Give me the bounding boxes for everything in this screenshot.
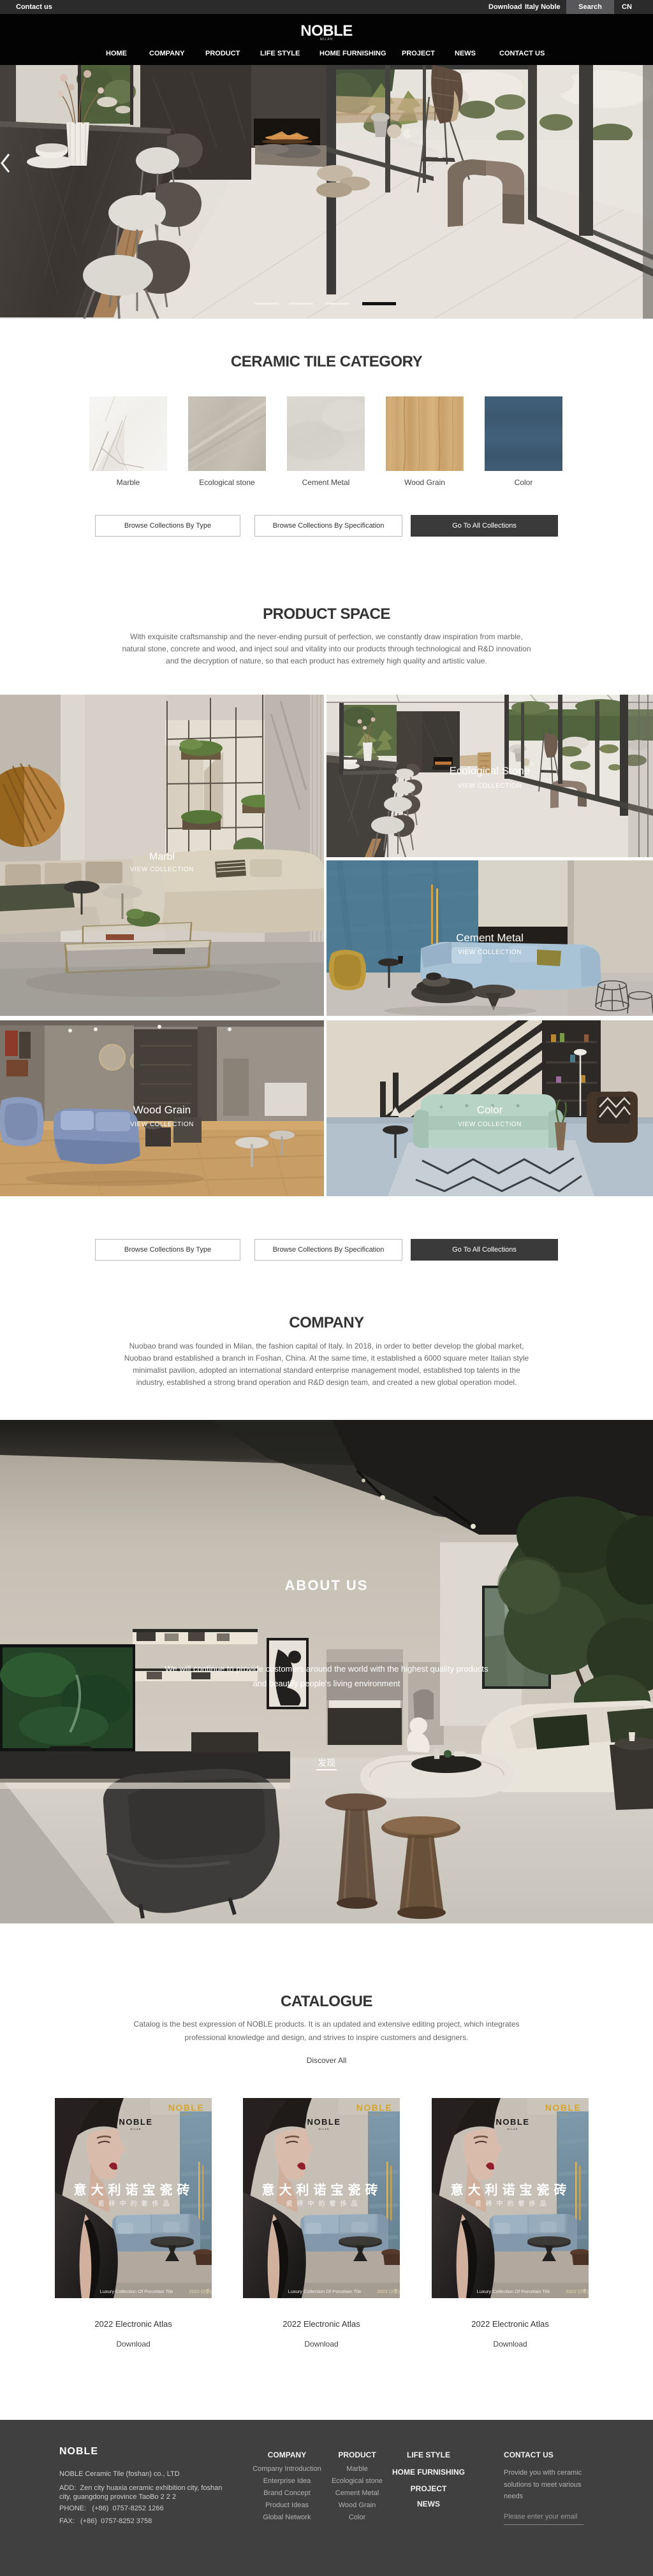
svg-text:MILAN: MILAN (319, 2128, 330, 2131)
svg-text:NOBLE: NOBLE (119, 2117, 153, 2127)
svg-text:意大利诺宝瓷砖: 意大利诺宝瓷砖 (451, 2182, 571, 2197)
svg-text:MILAN: MILAN (508, 2128, 518, 2131)
svg-text:意大利诺宝瓷砖: 意大利诺宝瓷砖 (74, 2182, 194, 2197)
svg-text:MILAN: MILAN (181, 2113, 192, 2116)
svg-text:NOBLE: NOBLE (545, 2102, 582, 2113)
svg-text:2022 (2季): 2022 (2季) (377, 2288, 400, 2294)
svg-text:Luxury Collection Of Porcelain: Luxury Collection Of Porcelain Tile (100, 2289, 173, 2294)
svg-text:NOBLE: NOBLE (496, 2117, 530, 2127)
svg-text:NOBLE: NOBLE (356, 2102, 393, 2113)
svg-text:瓷砖中的奢侈品: 瓷砖中的奢侈品 (98, 2199, 174, 2208)
svg-text:2022 (2季): 2022 (2季) (566, 2288, 589, 2294)
svg-text:瓷砖中的奢侈品: 瓷砖中的奢侈品 (475, 2199, 551, 2208)
svg-text:NOBLE: NOBLE (307, 2117, 341, 2127)
svg-text:意大利诺宝瓷砖: 意大利诺宝瓷砖 (262, 2182, 383, 2197)
svg-text:2022 (2季): 2022 (2季) (189, 2288, 212, 2294)
svg-text:MILAN: MILAN (369, 2113, 380, 2116)
svg-text:Luxury Collection Of Porcelain: Luxury Collection Of Porcelain Tile (477, 2289, 550, 2294)
svg-text:Luxury Collection Of Porcelain: Luxury Collection Of Porcelain Tile (288, 2289, 362, 2294)
svg-text:瓷砖中的奢侈品: 瓷砖中的奢侈品 (286, 2199, 362, 2208)
svg-text:NOBLE: NOBLE (168, 2102, 205, 2113)
svg-text:MILAN: MILAN (131, 2128, 142, 2131)
svg-text:MILAN: MILAN (558, 2113, 569, 2116)
